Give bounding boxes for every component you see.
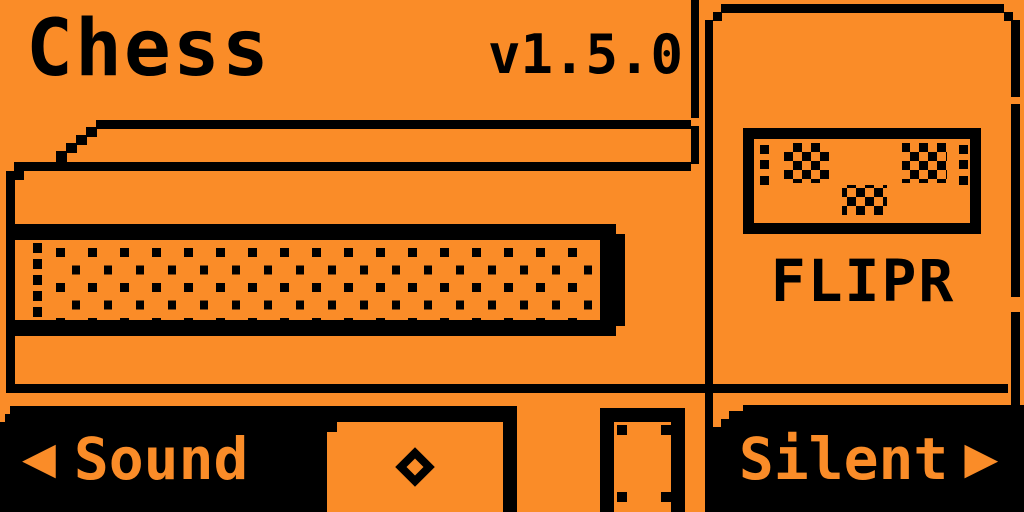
baseline-separator: [8, 384, 1008, 393]
chess-app-screen: Chess v1.5.0 FLIPR ◀ Sound Silent ▶: [0, 0, 1024, 512]
dither-mouth: [842, 185, 887, 215]
ok-diamond-icon: [395, 447, 435, 487]
app-version: v1.5.0: [488, 28, 683, 82]
card-left-border: [705, 20, 713, 512]
piano-lid-top-edge: [96, 120, 691, 129]
sound-option-label: Sound: [74, 430, 249, 488]
piano-left-edge: [6, 171, 15, 393]
dither-right-eye: [902, 143, 947, 183]
ok-button[interactable]: [327, 422, 503, 512]
silent-option-label: Silent: [739, 430, 949, 488]
piano-lid-bottom-edge: [14, 162, 691, 171]
flipper-screen: [743, 128, 981, 234]
piano-leg: [600, 408, 685, 512]
card-right-border: [1011, 20, 1020, 97]
right-arrow-icon: ▶: [964, 437, 998, 481]
left-arrow-icon: ◀: [22, 437, 56, 481]
card-top-border: [721, 4, 1004, 13]
keyboard-bottom-rail: [15, 320, 600, 336]
page-title: Chess: [26, 10, 271, 88]
flipper-device-label: FLIPR: [713, 252, 1013, 310]
area-separator: [691, 0, 699, 118]
keyboard-top-rail: [15, 224, 600, 240]
keyboard-keys-dots: [48, 240, 592, 320]
silent-option-button[interactable]: Silent ▶: [713, 405, 1024, 512]
keyboard-right-cap: [600, 224, 616, 336]
dither-left-eye: [784, 143, 829, 183]
